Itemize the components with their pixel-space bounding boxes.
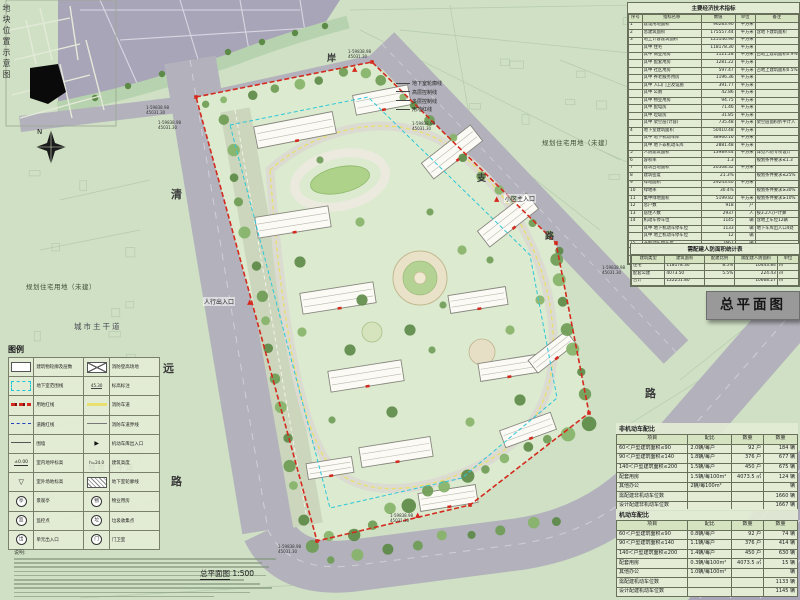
legend-symbol-cell: [9, 415, 34, 434]
table-cell: 机动车停车位: [642, 218, 701, 226]
motor-parking-panel: 机动车配比 项目配比数量数量60＜户型建筑面积≤900.8辆/每户92 户74 …: [616, 509, 798, 597]
table-cell: 规划条件要求≥10%: [755, 195, 798, 203]
table-row: 项目配比数量数量: [617, 521, 798, 531]
notes-title: 说明:: [14, 549, 286, 556]
table-cell: 平方米: [735, 105, 755, 113]
table-cell: [629, 82, 643, 90]
table-cell: 1.4辆/每户: [688, 549, 732, 559]
legend-symbol-cell: 物: [84, 492, 109, 511]
tree: [327, 556, 334, 563]
tree: [219, 114, 229, 124]
table-cell: [731, 587, 763, 597]
table-row: 需配建机动车位数1133 辆: [617, 578, 798, 588]
table-cell: 其中 地上机动车停车位: [642, 233, 701, 241]
table-row: 其中 养老服务用房1196.36平方米: [629, 75, 799, 83]
table-cell: 118178.30: [665, 263, 705, 271]
table-cell: 规划条件要求≤1.3: [755, 158, 798, 166]
table-row: 其中 架空层(计容)735.48平方米架空层面积折半计入: [629, 120, 799, 128]
yellow-legend-symbol: [87, 403, 107, 406]
notes-line: [14, 587, 272, 589]
river-tree: [292, 30, 298, 36]
tree: [344, 344, 355, 355]
table-cell: 2.0辆/每户: [688, 444, 732, 454]
tree: [202, 101, 209, 108]
table-cell: 辆: [735, 218, 755, 226]
table-cell: [704, 278, 734, 286]
tree: [257, 291, 268, 302]
table-cell: 13: [629, 210, 643, 218]
legend-label: 室内地坪标高: [34, 453, 84, 472]
table-row: 序号指标名称数值单位备注: [629, 15, 799, 23]
table-cell: 175557.44: [701, 30, 735, 38]
table-cell: 辆: [764, 482, 798, 492]
notes-line: [14, 583, 260, 585]
table-cell: 6: [629, 158, 643, 166]
legend-symbol-cell: 门: [84, 530, 109, 549]
table-cell: [629, 105, 643, 113]
table-row: 11集中绿地面积5199.82平方米规划条件要求≥10%: [629, 195, 799, 203]
economic-indicators-panel: 主要经济技术指标 序号指标名称数值单位备注1建设用地面积96283.90平方米2…: [627, 2, 800, 265]
coord-label: 1-59838.9845031.30: [348, 50, 371, 60]
table-cell: 1.8辆/每户: [688, 454, 732, 464]
circ-legend-symbol: 门: [91, 534, 102, 545]
table-cell: [755, 97, 798, 105]
table-cell: [755, 112, 798, 120]
table-cell: [755, 37, 798, 45]
table-cell: 0.8辆/每户: [688, 530, 732, 540]
boundary-vertex: [468, 503, 472, 507]
table-cell: 需配建非机动车位数: [617, 492, 688, 502]
table-cell: 118178.30: [701, 45, 735, 53]
table-cell: 人防建筑面积: [642, 150, 701, 158]
tree: [382, 544, 393, 555]
boundary-vertex: [587, 411, 591, 415]
table-cell: 4: [629, 127, 643, 135]
road-char-lu2: 路: [545, 229, 554, 242]
table-row: 60＜户型建筑面积≤902.0辆/每户92 户184 辆: [617, 444, 798, 454]
table-cell: 平方米: [735, 195, 755, 203]
tree: [261, 316, 270, 325]
circ-legend-symbol: 垃: [91, 515, 102, 526]
legend-symbol-cell: 垃: [84, 511, 109, 530]
main-entrance-label: 小区主入口: [504, 194, 536, 203]
table-cell: 其中 社区用房: [642, 67, 701, 75]
tree: [552, 517, 561, 526]
table-cell: 平方米: [735, 120, 755, 128]
legend-row: 道路红线消防车道界线: [9, 415, 160, 434]
table-cell: [755, 127, 798, 135]
table-cell: 11: [629, 195, 643, 203]
table-cell: 96283.90: [701, 22, 735, 30]
table-cell: 辆: [735, 225, 755, 233]
table-cell: 占地上建筑面积0.9%: [755, 52, 798, 60]
economic-indicators-title: 主要经济技术指标: [628, 3, 799, 14]
tree: [481, 465, 489, 473]
legend-symbol-cell: ▽: [9, 473, 34, 492]
table-cell: [755, 22, 798, 30]
legend-symbol-cell: [9, 434, 34, 453]
table-cell: 绿地面积: [642, 180, 701, 188]
economic-indicators-table: 序号指标名称数值单位备注1建设用地面积96283.90平方米2总建筑面积1755…: [628, 14, 799, 264]
nonmotor-parking-title: 非机动车配比: [616, 423, 798, 434]
notes-line: [14, 562, 262, 564]
hval-legend-symbol: h=24.0: [89, 460, 104, 465]
table-row: 2总建筑面积175557.44平方米含地下建筑面积: [629, 30, 799, 38]
table-cell: [629, 45, 643, 53]
table-cell: 376 户: [731, 540, 763, 550]
table-cell: 15 辆: [764, 559, 798, 569]
legend-label: 单元出入口: [34, 530, 84, 549]
garden-node: [469, 339, 495, 365]
table-cell: 配套用房: [617, 473, 688, 483]
coord-label: 1-59838.9845031.30: [146, 106, 169, 116]
inset-map-title: 地块位置示意图: [1, 4, 12, 81]
table-cell: 地下车库出入口4处: [755, 225, 798, 233]
legend-label: 消防登高场地: [109, 358, 159, 377]
table-cell: [629, 233, 643, 241]
legend-label: 门卫室: [109, 530, 159, 549]
table-cell: 125146.96: [701, 37, 735, 45]
table-row: 5人防建筑面积13989.44平方米详见人防专项设计: [629, 150, 799, 158]
legend-symbol-cell: [9, 396, 34, 415]
table-cell: ㎡: [777, 263, 798, 271]
table-cell: 其中 配套用房: [642, 60, 701, 68]
table-cell: 1.5辆/每100m²: [688, 473, 732, 483]
legend-label: 标高标注: [109, 377, 159, 396]
table-row: 140＜户型建筑面积≤2001.5辆/每户450 户675 辆: [617, 463, 798, 473]
tree: [351, 549, 363, 561]
table-cell: 31.85: [701, 112, 735, 120]
legend-label: 机动车库出入口: [109, 434, 159, 453]
river-tree: [259, 39, 265, 45]
table-row: 其中 社区用房597.47平方米占地上建筑面积0.5%: [629, 67, 799, 75]
scale-value: 1:500: [232, 569, 254, 578]
legend-title: 图例: [8, 344, 160, 355]
column-header: 数量: [764, 521, 798, 531]
tree: [457, 245, 466, 254]
city-main-road-label-1: 城市主干道: [74, 321, 122, 332]
table-cell: 建筑占地面积: [642, 165, 701, 173]
coord-label: 1-59838.9845031.30: [602, 266, 625, 276]
table-cell: 1145 辆: [764, 587, 798, 597]
table-cell: 其他办公: [617, 482, 688, 492]
tree: [465, 417, 474, 426]
table-cell: 918: [701, 203, 735, 211]
table-row: 90＜户型建筑面积≤1401.1辆/每户376 户414 辆: [617, 540, 798, 550]
table-cell: 10668.27: [735, 278, 778, 286]
table-cell: 含地上车位12辆: [755, 218, 798, 226]
table-cell: [755, 233, 798, 241]
table-cell: 其中 地下机动车停车位: [642, 225, 701, 233]
table-cell: [731, 578, 763, 588]
table-cell: 绿地率: [642, 188, 701, 196]
table-cell: 735.48: [701, 120, 735, 128]
scale-name: 总平面图: [200, 569, 230, 580]
table-cell: [755, 105, 798, 113]
legend-label: 消防车道: [109, 396, 159, 415]
table-cell: 按3.2人/户计算: [755, 210, 798, 218]
table-cell: 平方米: [735, 112, 755, 120]
tree: [386, 406, 397, 417]
table-cell: 2881.48: [701, 143, 735, 151]
legend-symbol-cell: 监: [9, 511, 34, 530]
river-tree: [225, 49, 231, 55]
table-cell: [629, 120, 643, 128]
table-cell: 地上计容建筑面积: [642, 37, 701, 45]
civil-defense-panel: 需配建人防面积统计表 建筑类型建筑面积配建比例需配建人防面积单位住宅118178…: [630, 243, 800, 287]
tree: [413, 541, 423, 551]
table-cell: 平方米: [735, 37, 755, 45]
column-header: 配比: [688, 521, 732, 531]
table-cell: [735, 173, 755, 181]
table-cell: 平方米: [735, 180, 755, 188]
boundary-vertex: [315, 539, 319, 543]
tree: [500, 454, 510, 464]
tree: [361, 68, 371, 78]
table-cell: 1: [629, 22, 643, 30]
legend-label: 建筑高度: [109, 453, 159, 472]
table-row: 3地上计容建筑面积125146.96平方米: [629, 37, 799, 45]
legend-label: 地下室范围线: [34, 377, 84, 396]
coord-label: 1-59838.9845031.30: [158, 121, 181, 131]
table-cell: 60＜户型建筑面积≤90: [617, 530, 688, 540]
legend-label: 围墙: [34, 434, 84, 453]
table-cell: 建筑密度: [642, 173, 701, 181]
road-char-lu3: 路: [645, 385, 656, 401]
table-row: 60＜户型建筑面积≤900.8辆/每户92 户74 辆: [617, 530, 798, 540]
column-header: 建筑类型: [632, 256, 665, 264]
table-cell: [755, 45, 798, 53]
table-cell: [629, 60, 643, 68]
table-cell: ㎡: [777, 271, 798, 279]
table-row: 住宅118178.308.5%10443.84㎡: [632, 263, 799, 271]
table-cell: 人: [735, 210, 755, 218]
table-cell: [629, 75, 643, 83]
annotation-line: 用地红线: [396, 106, 442, 115]
table-cell: 其中 物业用房: [642, 97, 701, 105]
tree: [297, 327, 306, 336]
tree: [289, 481, 298, 490]
table-cell: 配套公建: [632, 271, 665, 279]
table-row: 6容积率1.3规划条件要求≤1.3: [629, 158, 799, 166]
table-cell: 2937: [701, 210, 735, 218]
boundary-annotations: 地下室轮廓线 高层控制线 多层控制线 用地红线: [396, 80, 442, 115]
table-cell: 677 辆: [764, 454, 798, 464]
tree: [375, 75, 386, 86]
column-header: 建筑面积: [665, 256, 705, 264]
table-cell: 平方米: [735, 45, 755, 53]
column-header: 单位: [735, 15, 755, 23]
tree: [467, 531, 475, 539]
table-cell: [735, 158, 755, 166]
table-row: 配套用房0.3辆/每100m²4073.5 ㎡15 辆: [617, 559, 798, 569]
table-row: 1建设用地面积96283.90平方米: [629, 22, 799, 30]
table-row: 12总户数918户: [629, 203, 799, 211]
table-cell: 平方米: [735, 52, 755, 60]
legend-label: 物业用房: [109, 492, 159, 511]
legend-symbol-cell: ▶: [84, 434, 109, 453]
tree: [535, 295, 544, 304]
legend-label: 垃圾收集点: [109, 511, 159, 530]
table-cell: 平方米: [735, 150, 755, 158]
table-cell: 675 辆: [764, 463, 798, 473]
tree: [294, 256, 305, 267]
table-cell: 20508.32: [701, 165, 735, 173]
boundary-vertex: [370, 60, 374, 64]
civil-defense-table: 建筑类型建筑面积配建比例需配建人防面积单位住宅118178.308.5%1044…: [631, 255, 799, 286]
tree: [437, 530, 447, 540]
arrow-legend-symbol: ▶: [94, 441, 99, 447]
table-cell: 140＜户型建筑面积≤200: [617, 463, 688, 473]
table-cell: 其他办公: [617, 568, 688, 578]
table-cell: 平方米: [735, 67, 755, 75]
tree: [439, 301, 446, 308]
table-cell: [629, 143, 643, 151]
table-cell: [731, 482, 763, 492]
motor-parking-title: 机动车配比: [616, 509, 798, 520]
tree: [486, 256, 493, 263]
table-row: 7建筑占地面积20508.32平方米: [629, 165, 799, 173]
table-row: 项目配比数量数量: [617, 435, 798, 445]
legend-table: 建筑物轮廓及层数消防登高场地地下室范围线45.30标高标注用地红线消防车道道路红…: [8, 357, 160, 550]
tree: [461, 469, 474, 482]
table-row: 其中 地下机动车停车位1133辆地下车库出入口4处: [629, 225, 799, 233]
table-cell: 容积率: [642, 158, 701, 166]
table-row: 其中 入口门卫及设施391.77平方米: [629, 82, 799, 90]
table-cell: [629, 67, 643, 75]
table-cell: [629, 135, 643, 143]
table-cell: [735, 188, 755, 196]
table-row: 合计122251.8010668.27㎡: [632, 278, 799, 286]
central-plaza: [393, 251, 447, 305]
pedestrian-entrance-marker: ▲: [247, 299, 252, 306]
table-row: 配套公建4073.505.5%224.43㎡: [632, 271, 799, 279]
table-cell: ㎡: [777, 278, 798, 286]
table-cell: 124 辆: [764, 473, 798, 483]
column-header: 备注: [755, 15, 798, 23]
coord-label: 1-59838.9845031.30: [390, 514, 413, 524]
table-cell: 居住人数: [642, 210, 701, 218]
table-cell: 设计配建机动车位数: [617, 587, 688, 597]
legend-symbol-cell: 出: [9, 530, 34, 549]
thin-legend-symbol: [87, 423, 107, 424]
boundary-vertex: [194, 95, 198, 99]
table-cell: 7: [629, 165, 643, 173]
table-cell: 辆: [764, 568, 798, 578]
table-cell: 建设用地面积: [642, 22, 701, 30]
legend-symbol-cell: [9, 358, 34, 377]
table-cell: 12: [701, 233, 735, 241]
table-cell: 平方米: [735, 97, 755, 105]
table-cell: 184 辆: [764, 444, 798, 454]
table-cell: 其中 地下非机动车库: [642, 143, 701, 151]
tree: [248, 91, 258, 101]
sheet-title-box: 总平面图: [706, 291, 800, 320]
table-cell: 4073.50: [665, 271, 705, 279]
garden-node: [362, 322, 382, 342]
legend-row: ▽室外场地标高地下室轮廓线: [9, 473, 160, 492]
legend-row: 亭景观亭物物业用房: [9, 492, 160, 511]
legend-label: 道路红线: [34, 415, 84, 434]
table-cell: 配套用房: [617, 559, 688, 569]
table-cell: 平方米: [735, 30, 755, 38]
table-cell: 5.5%: [704, 271, 734, 279]
table-cell: 合计: [632, 278, 665, 286]
road-char-lu: 路: [171, 473, 182, 489]
tree: [514, 394, 525, 405]
circ-legend-symbol: 监: [16, 515, 27, 526]
table-row: 其中 垃圾房31.85平方米: [629, 112, 799, 120]
table-cell: 224.43: [735, 271, 778, 279]
xbox-legend-symbol: [87, 362, 107, 373]
table-cell: 总户数: [642, 203, 701, 211]
table-cell: 其中 垃圾房: [642, 112, 701, 120]
table-cell: 42.86: [701, 90, 735, 98]
table-cell: 平方米: [735, 75, 755, 83]
tree: [234, 197, 243, 206]
table-cell: 414 辆: [764, 540, 798, 550]
table-cell: 10443.84: [735, 263, 778, 271]
table-cell: 3: [629, 37, 643, 45]
table-cell: 平方米: [735, 90, 755, 98]
legend-row: 用地红线消防车道: [9, 396, 160, 415]
legend-panel: 图例 建筑物轮廓及层数消防登高场地地下室范围线45.30标高标注用地红线消防车道…: [8, 344, 160, 550]
legend-label: 地下室轮廓线: [109, 473, 159, 492]
table-cell: [731, 568, 763, 578]
nonmotor-parking-table: 项目配比数量数量60＜户型建筑面积≤902.0辆/每户92 户184 辆90＜户…: [616, 434, 798, 511]
table-cell: 29243.40: [701, 180, 735, 188]
table-cell: 74 辆: [764, 530, 798, 540]
table-cell: 8.5%: [704, 263, 734, 271]
legend-label: 建筑物轮廓及层数: [34, 358, 84, 377]
table-row: 需配建非机动车位数1660 辆: [617, 492, 798, 502]
table-cell: [755, 90, 798, 98]
table-cell: 122251.80: [665, 278, 705, 286]
table-cell: [688, 492, 732, 502]
table-row: 其中 配电房71.46平方米: [629, 105, 799, 113]
table-cell: 其中 公厕: [642, 90, 701, 98]
circ-legend-symbol: 物: [91, 496, 102, 507]
tree: [582, 417, 597, 432]
tree: [314, 76, 322, 84]
table-row: 13居住人数2937人按3.2人/户计算: [629, 210, 799, 218]
table-cell: 2辆/每100m²: [688, 482, 732, 492]
motor-parking-table: 项目配比数量数量60＜户型建筑面积≤900.8辆/每户92 户74 辆90＜户型…: [616, 520, 798, 597]
table-row: 4地下室建筑面积50410.48平方米: [629, 127, 799, 135]
table-row: 配套用房1.5辆/每100m²4073.5 ㎡124 辆: [617, 473, 798, 483]
legend-symbol-cell: 亭: [9, 492, 34, 511]
tree: [316, 156, 323, 163]
road-char-zhi: 支: [477, 171, 486, 184]
table-cell: 辆: [735, 233, 755, 241]
legend-symbol-cell: [84, 396, 109, 415]
table-row: 140＜户型建筑面积≤2001.4辆/每户450 户630 辆: [617, 549, 798, 559]
hatch-legend-symbol: [87, 477, 107, 488]
table-row: 其中 地上机动车停车位12辆: [629, 233, 799, 241]
table-cell: 1133: [701, 225, 735, 233]
table-cell: 其中 架空层(计容): [642, 120, 701, 128]
annotation-line: 地下室轮廓线: [396, 80, 442, 89]
column-header: 数值: [701, 15, 735, 23]
table-cell: 1.1辆/每户: [688, 540, 732, 550]
column-header: 数量: [731, 521, 763, 531]
tree: [426, 208, 433, 215]
fence-legend-symbol: [11, 442, 31, 443]
legend-symbol-cell: h=24.0: [84, 453, 109, 472]
table-cell: 总建筑面积: [642, 30, 701, 38]
tree: [550, 253, 563, 266]
column-header: 数量: [731, 435, 763, 445]
